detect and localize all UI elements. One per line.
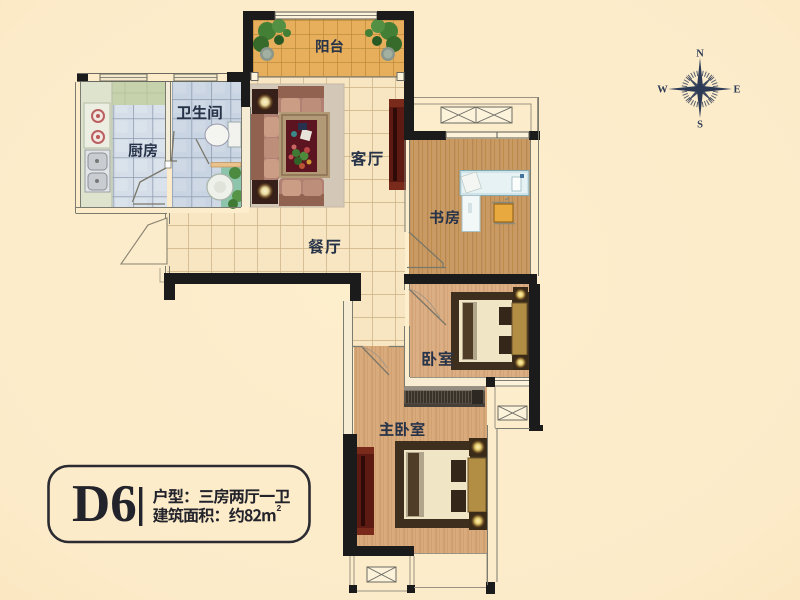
svg-text:2: 2 [277, 503, 282, 513]
svg-text:D6: D6 [72, 475, 137, 533]
svg-text:W: W [657, 85, 668, 96]
svg-text:E: E [733, 85, 740, 96]
svg-text:S: S [697, 120, 703, 131]
svg-text:N: N [696, 49, 704, 60]
